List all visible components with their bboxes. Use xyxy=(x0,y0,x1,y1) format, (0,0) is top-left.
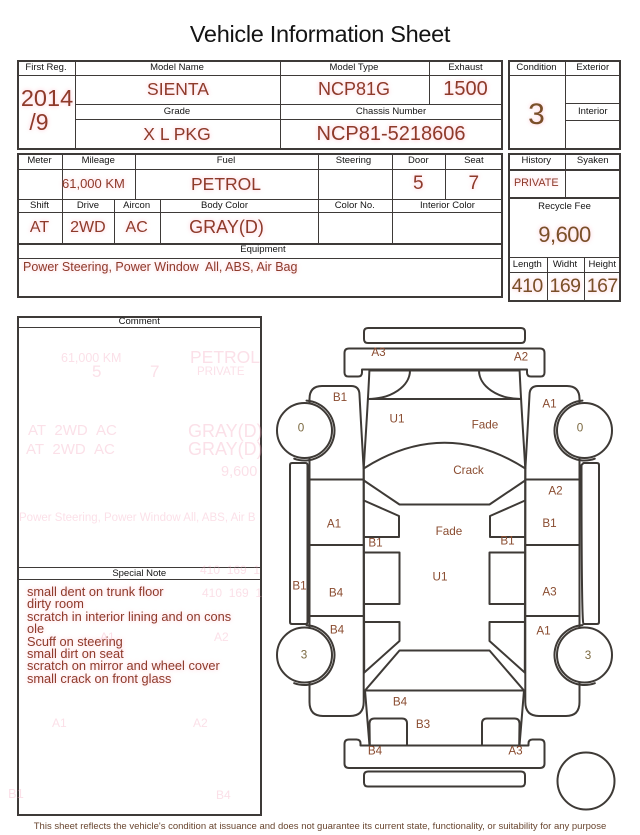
svg-text:B4: B4 xyxy=(330,624,345,637)
svg-text:A2: A2 xyxy=(548,485,562,498)
svg-text:Crack: Crack xyxy=(453,464,484,477)
svg-text:B4: B4 xyxy=(393,696,408,709)
svg-text:B1: B1 xyxy=(542,517,556,530)
svg-text:B1: B1 xyxy=(368,537,382,550)
svg-text:A1: A1 xyxy=(542,398,556,411)
svg-text:0: 0 xyxy=(577,422,584,435)
svg-text:A3: A3 xyxy=(371,346,385,359)
svg-text:A3: A3 xyxy=(542,586,556,599)
svg-text:B4: B4 xyxy=(329,587,344,600)
svg-text:U1: U1 xyxy=(433,571,448,584)
svg-text:U1: U1 xyxy=(390,413,405,426)
svg-text:A1: A1 xyxy=(536,625,550,638)
svg-text:A1: A1 xyxy=(327,518,341,531)
svg-text:B1: B1 xyxy=(500,535,514,548)
svg-text:B1: B1 xyxy=(292,580,306,593)
svg-text:0: 0 xyxy=(298,422,305,435)
svg-text:A2: A2 xyxy=(514,351,528,364)
svg-text:B4: B4 xyxy=(368,745,383,758)
svg-text:Fade: Fade xyxy=(436,525,463,538)
svg-text:A3: A3 xyxy=(508,745,522,758)
svg-text:B1: B1 xyxy=(333,391,347,404)
svg-text:3: 3 xyxy=(585,649,592,662)
svg-text:Fade: Fade xyxy=(472,419,499,432)
svg-text:B3: B3 xyxy=(416,718,430,731)
svg-text:3: 3 xyxy=(301,649,308,662)
